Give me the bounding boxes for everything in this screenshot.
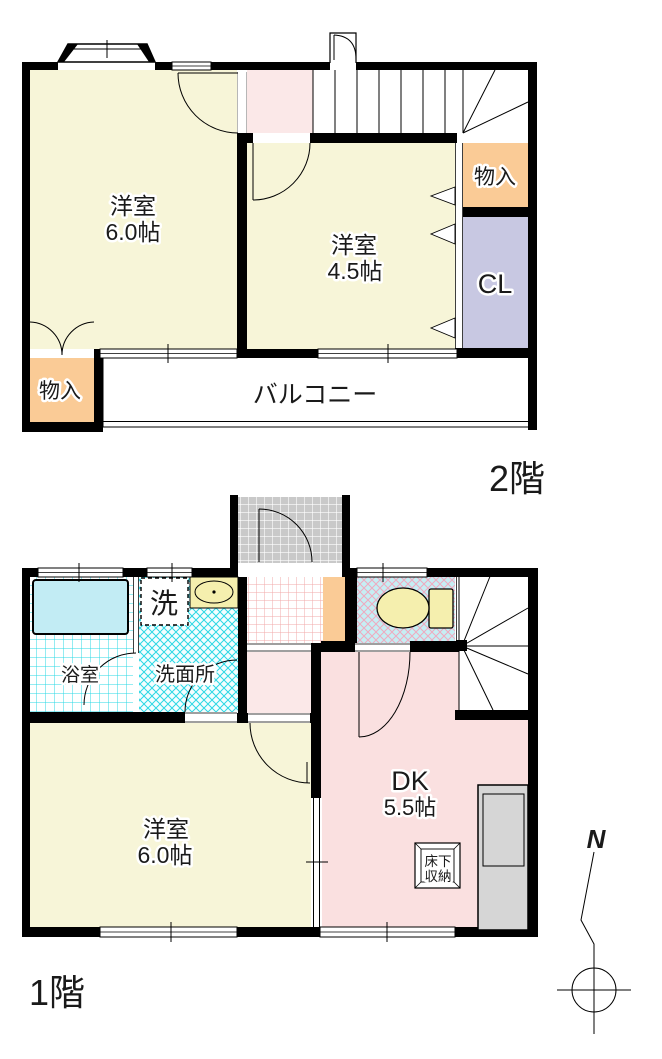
label-floor-storage-1: 床下 bbox=[425, 854, 452, 869]
label-2f-room45-name: 洋室 bbox=[331, 232, 377, 258]
north-arrow-icon: N bbox=[557, 824, 631, 1034]
bay-window bbox=[58, 40, 155, 62]
window-2f-top bbox=[172, 62, 211, 70]
label-2f-room6-size: 6.0帖 bbox=[106, 219, 161, 245]
label-washer: 洗 bbox=[150, 588, 178, 619]
label-dk-name: DK bbox=[391, 766, 429, 796]
label-2f-closet: CL bbox=[478, 269, 513, 299]
floor-plan: 洋室 6.0帖 洋室 4.5帖 物入 CL 物入 バルコニー 2階 bbox=[0, 0, 662, 1054]
label-bathroom: 浴室 bbox=[61, 664, 99, 686]
label-1f-room6-name: 洋室 bbox=[143, 816, 189, 842]
bathtub bbox=[33, 580, 128, 634]
label-washroom: 洗面所 bbox=[155, 663, 215, 686]
label-north: N bbox=[587, 824, 607, 854]
entrance-porch bbox=[230, 495, 350, 577]
entrance-threshold bbox=[247, 643, 311, 652]
label-1f-floor: 1階 bbox=[29, 972, 85, 1013]
label-2f-room6-name: 洋室 bbox=[110, 193, 156, 219]
room-1f-hall bbox=[247, 643, 311, 713]
staircase-1f bbox=[456, 569, 528, 710]
label-2f-floor: 2階 bbox=[489, 458, 545, 499]
label-2f-storage-right: 物入 bbox=[474, 166, 516, 189]
washbasin bbox=[190, 577, 238, 608]
toilet-fixture bbox=[377, 588, 453, 628]
room-2f-hall bbox=[247, 70, 313, 133]
label-2f-room45-size: 4.5帖 bbox=[328, 258, 383, 284]
second-floor: 洋室 6.0帖 洋室 4.5帖 物入 CL 物入 バルコニー 2階 bbox=[22, 33, 545, 499]
kitchen-counter bbox=[478, 785, 528, 930]
label-2f-storage-left: 物入 bbox=[39, 380, 81, 403]
entrance-step bbox=[323, 577, 345, 643]
stair-head bbox=[330, 33, 356, 63]
room-1f-entrance bbox=[247, 577, 323, 643]
floor-plan-drawing: 洋室 6.0帖 洋室 4.5帖 物入 CL 物入 バルコニー 2階 bbox=[0, 0, 662, 1054]
label-dk-size: 5.5帖 bbox=[384, 795, 437, 820]
label-balcony: バルコニー bbox=[253, 381, 378, 409]
first-floor: 浴室 洗 洗面所 洋室 6.0帖 DK 5.5帖 床下 収納 1階 bbox=[22, 495, 538, 1013]
label-floor-storage-2: 収納 bbox=[425, 869, 452, 884]
room-2f-stairs bbox=[313, 70, 528, 133]
label-1f-room6-size: 6.0帖 bbox=[138, 842, 193, 868]
